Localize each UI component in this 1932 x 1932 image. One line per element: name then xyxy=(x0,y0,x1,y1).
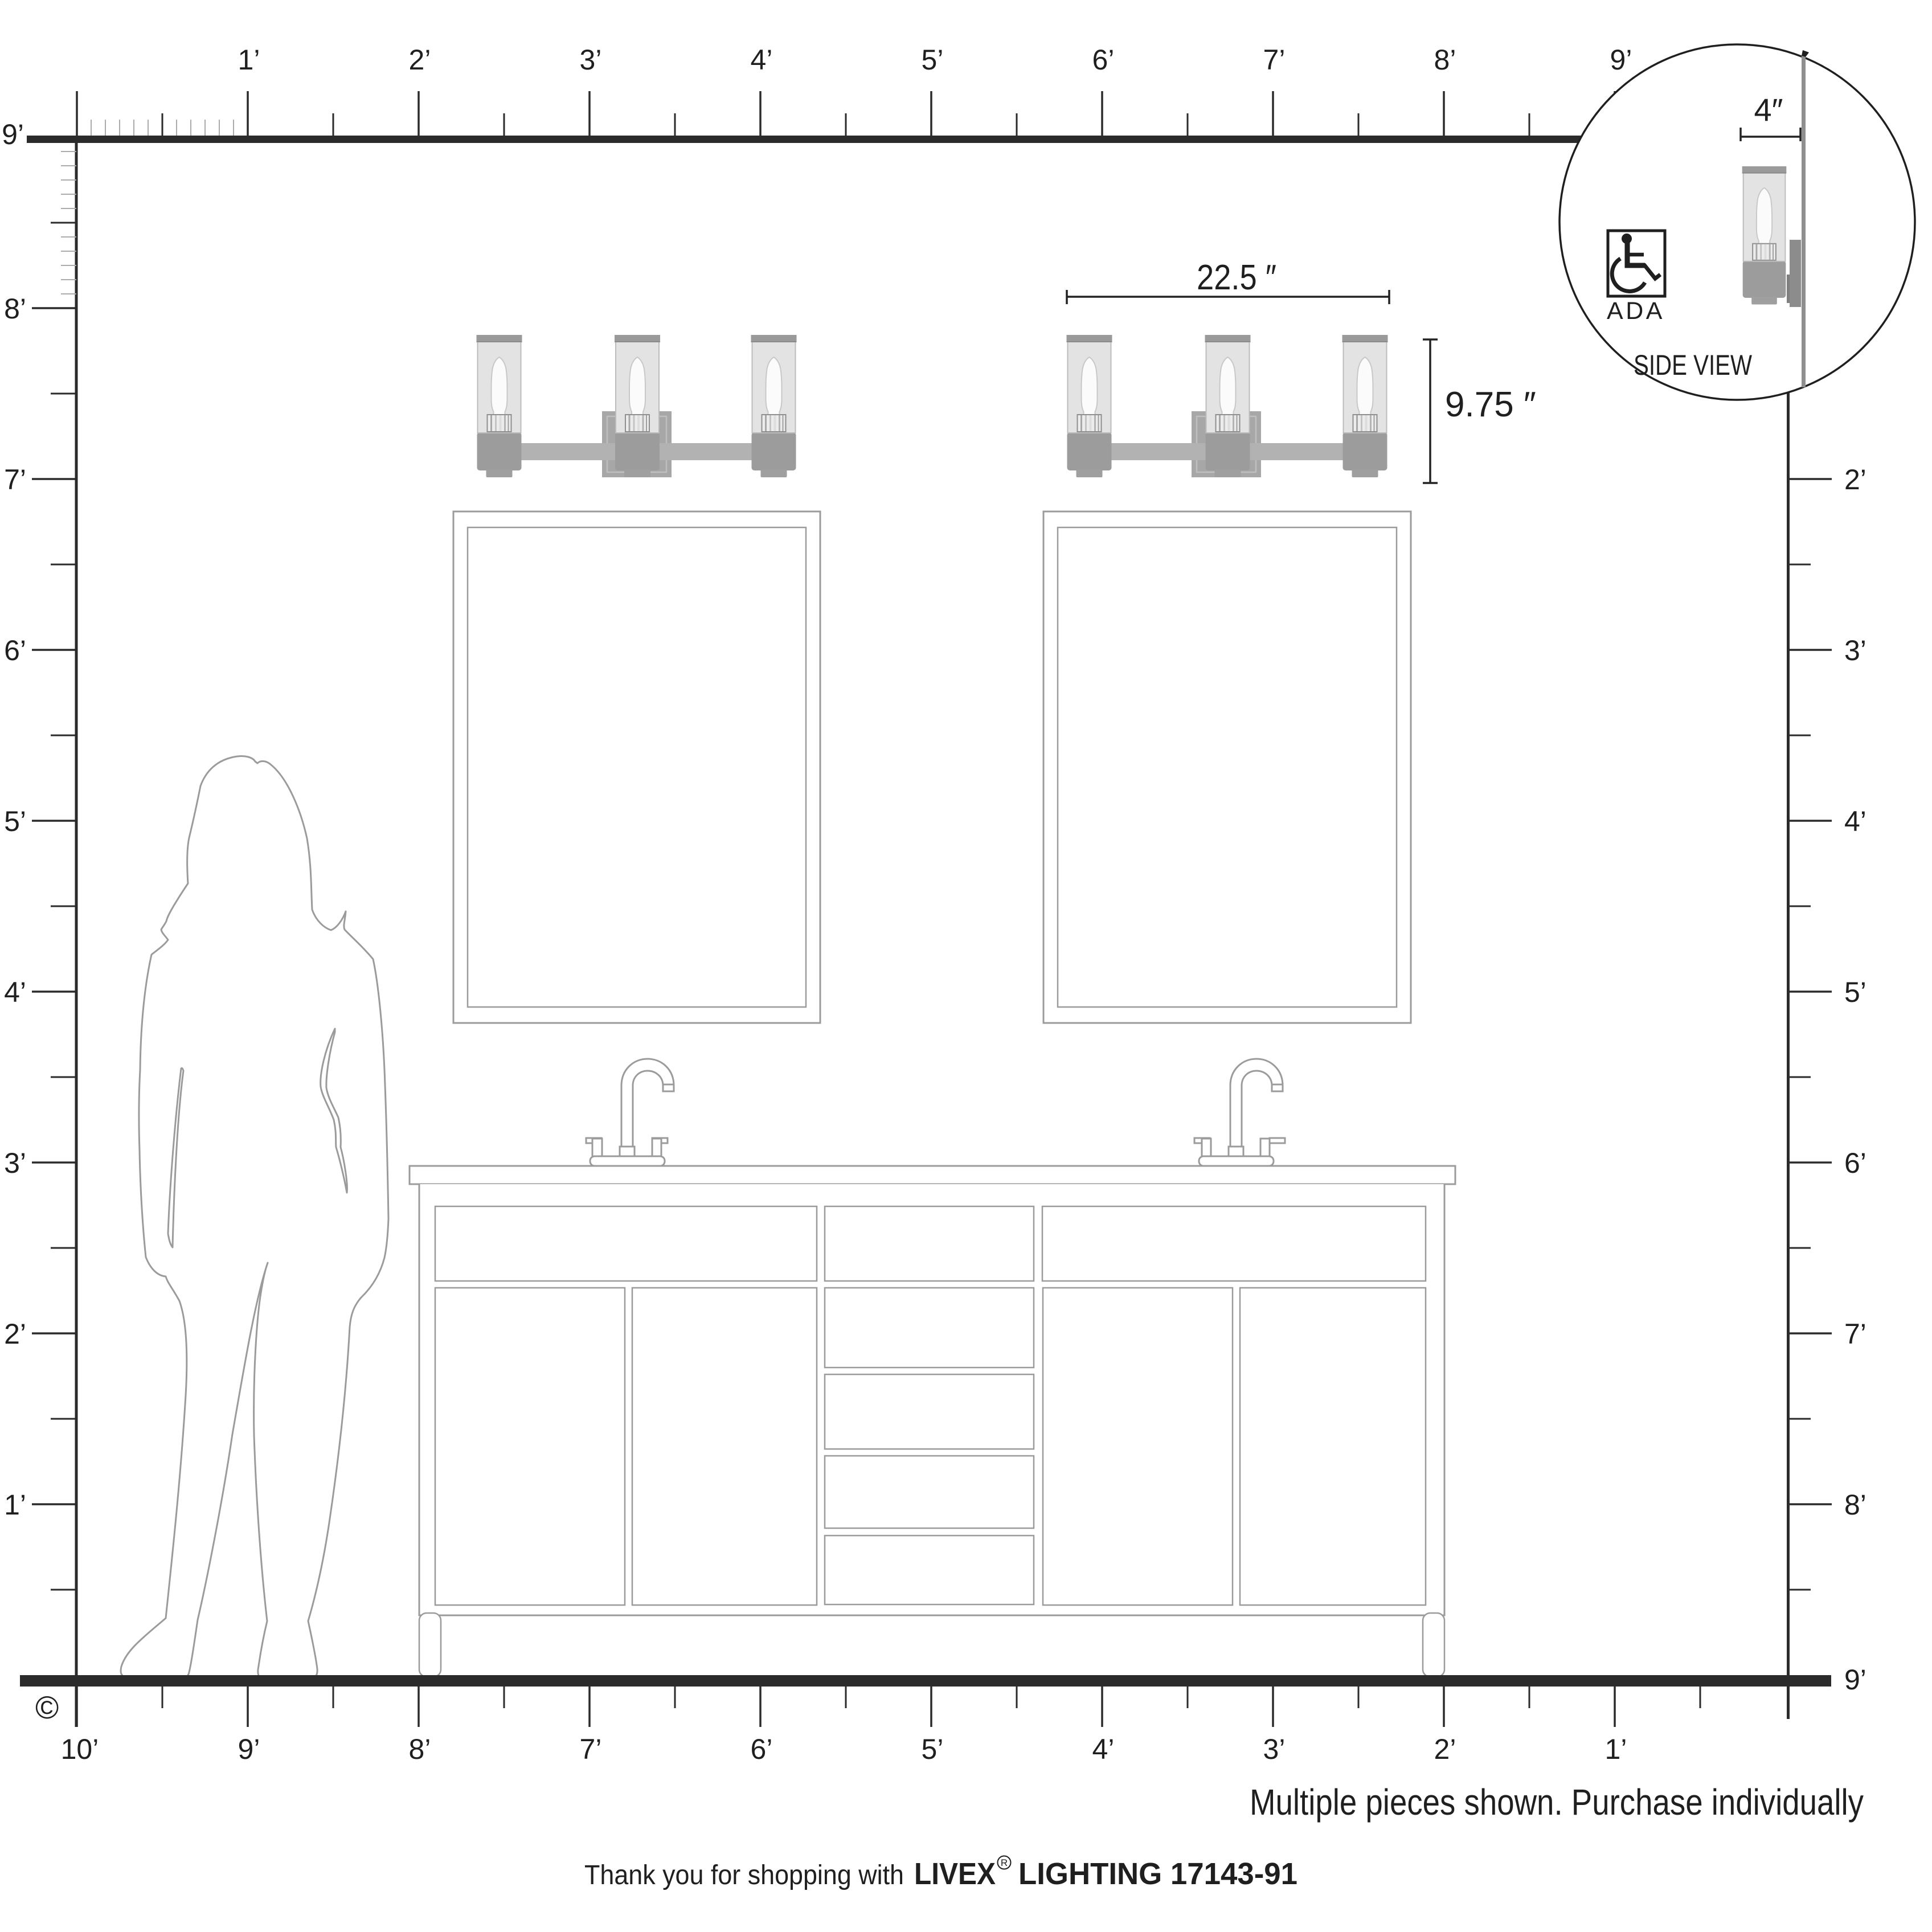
svg-text:9’: 9’ xyxy=(238,1733,260,1765)
svg-text:22.5 ″: 22.5 ″ xyxy=(1197,258,1276,297)
svg-text:6’: 6’ xyxy=(1092,44,1115,76)
svg-text:2’: 2’ xyxy=(409,44,431,76)
svg-text:7’: 7’ xyxy=(4,464,26,496)
svg-text:1’: 1’ xyxy=(238,44,260,76)
svg-text:6’: 6’ xyxy=(1844,1147,1866,1179)
svg-text:3’: 3’ xyxy=(4,1147,26,1179)
svg-text:5’: 5’ xyxy=(922,1733,944,1765)
svg-text:R: R xyxy=(1001,1857,1008,1868)
svg-text:5’: 5’ xyxy=(1844,976,1866,1008)
svg-text:ADA: ADA xyxy=(1607,297,1665,325)
svg-text:8’: 8’ xyxy=(1844,1489,1866,1521)
svg-text:3’: 3’ xyxy=(1263,1733,1286,1765)
svg-text:9’: 9’ xyxy=(1844,1664,1866,1696)
svg-text:LIGHTING 17143-91: LIGHTING 17143-91 xyxy=(1018,1857,1297,1891)
svg-text:LIVEX: LIVEX xyxy=(914,1857,996,1891)
svg-text:1’: 1’ xyxy=(4,1489,26,1521)
svg-text:2’: 2’ xyxy=(4,1318,26,1350)
svg-text:9.75 ″: 9.75 ″ xyxy=(1445,385,1536,424)
svg-text:SIDE VIEW: SIDE VIEW xyxy=(1634,349,1753,381)
svg-text:Thank you for shopping with: Thank you for shopping with xyxy=(584,1860,904,1890)
svg-text:8’: 8’ xyxy=(409,1733,431,1765)
svg-text:1’: 1’ xyxy=(1605,1733,1627,1765)
svg-text:8’: 8’ xyxy=(4,293,26,325)
svg-text:9’: 9’ xyxy=(2,118,24,150)
svg-text:4’: 4’ xyxy=(1092,1733,1115,1765)
svg-text:2’: 2’ xyxy=(1434,1733,1456,1765)
svg-text:4’: 4’ xyxy=(4,976,26,1008)
svg-text:4’: 4’ xyxy=(751,44,773,76)
svg-text:7’: 7’ xyxy=(1263,44,1286,76)
svg-text:9’: 9’ xyxy=(1610,44,1632,76)
svg-text:10’: 10’ xyxy=(61,1733,99,1765)
svg-text:3’: 3’ xyxy=(1844,635,1866,666)
svg-text:©: © xyxy=(35,1689,59,1725)
svg-text:5’: 5’ xyxy=(4,805,26,837)
svg-text:6’: 6’ xyxy=(751,1733,773,1765)
svg-text:Multiple pieces shown. Purcha: Multiple pieces shown. Purchase individu… xyxy=(1250,1782,1864,1823)
svg-text:3’: 3’ xyxy=(580,44,602,76)
svg-text:7’: 7’ xyxy=(1844,1318,1866,1350)
svg-text:4’: 4’ xyxy=(1844,805,1866,837)
svg-text:8’: 8’ xyxy=(1434,44,1456,76)
svg-text:6’: 6’ xyxy=(4,635,26,666)
svg-text:2’: 2’ xyxy=(1844,464,1866,496)
svg-text:7’: 7’ xyxy=(580,1733,602,1765)
svg-text:4″: 4″ xyxy=(1754,92,1783,128)
svg-text:5’: 5’ xyxy=(922,44,944,76)
